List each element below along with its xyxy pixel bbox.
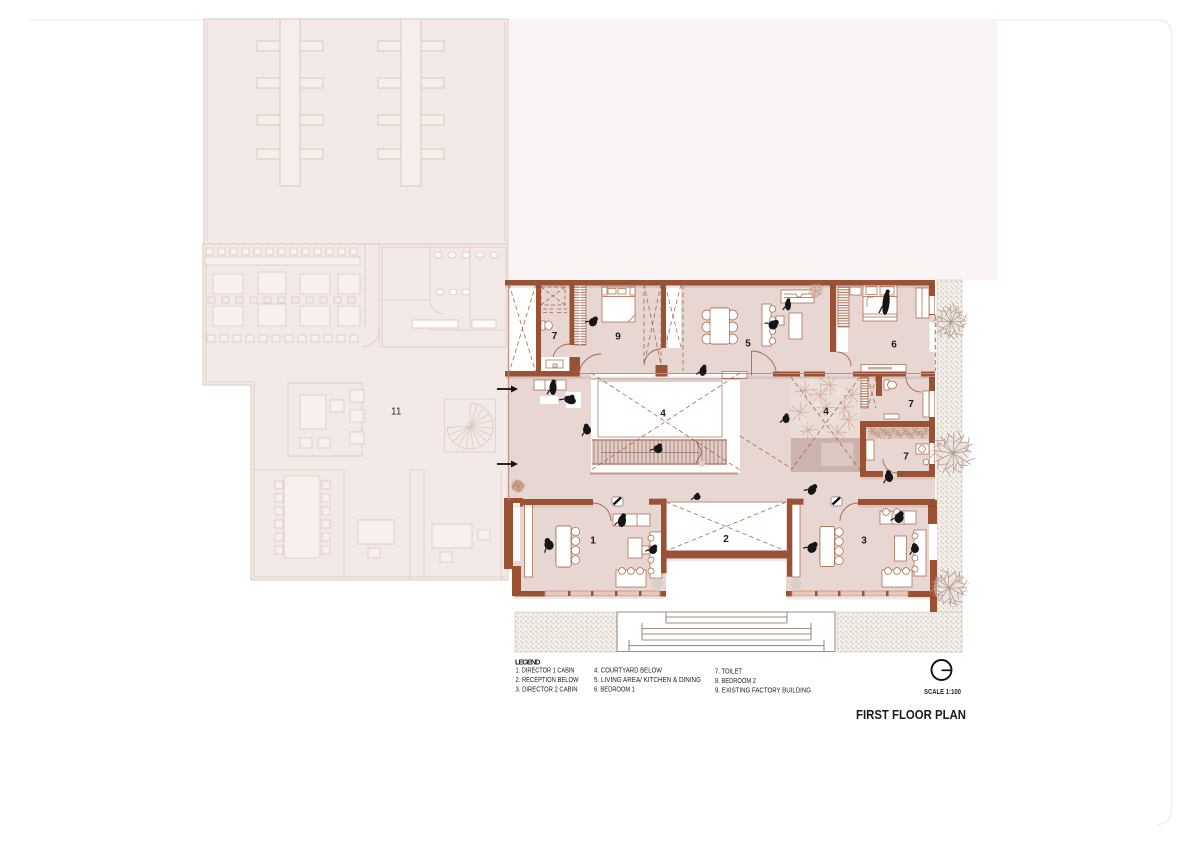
svg-text:6: 6 <box>891 340 897 351</box>
svg-text:5. LIVING AREA/ KITCHEN & DINI: 5. LIVING AREA/ KITCHEN & DINING <box>594 677 701 684</box>
svg-text:5: 5 <box>745 339 751 350</box>
svg-text:2. RECEPTION BELOW: 2. RECEPTION BELOW <box>516 677 579 684</box>
svg-text:9. EXISTING FACTORY BUILDING: 9. EXISTING FACTORY BUILDING <box>715 688 811 695</box>
svg-text:7: 7 <box>552 331 558 342</box>
svg-text:11: 11 <box>391 407 402 418</box>
svg-text:4: 4 <box>660 409 666 420</box>
svg-text:3. DIRECTOR 2 CABIN: 3. DIRECTOR 2 CABIN <box>516 687 578 694</box>
svg-text:LEGEND: LEGEND <box>515 658 541 667</box>
svg-text:3: 3 <box>861 536 867 547</box>
svg-text:9: 9 <box>615 332 621 343</box>
svg-text:4: 4 <box>823 407 829 418</box>
svg-text:7: 7 <box>903 452 909 463</box>
svg-text:6. BEDROOM 1: 6. BEDROOM 1 <box>594 687 635 694</box>
svg-text:2: 2 <box>723 534 729 545</box>
svg-text:FIRST FLOOR PLAN: FIRST FLOOR PLAN <box>856 707 966 722</box>
svg-text:7: 7 <box>908 399 914 410</box>
svg-text:SCALE 1:100: SCALE 1:100 <box>924 687 961 696</box>
svg-text:4. COURTYARD BELOW: 4. COURTYARD BELOW <box>594 667 662 674</box>
svg-text:8. BEDROOM 2: 8. BEDROOM 2 <box>715 678 756 685</box>
svg-text:1: 1 <box>590 536 596 547</box>
svg-text:1. DIRECTOR 1 CABIN: 1. DIRECTOR 1 CABIN <box>516 667 575 674</box>
svg-text:7. TOILET: 7. TOILET <box>715 669 743 676</box>
